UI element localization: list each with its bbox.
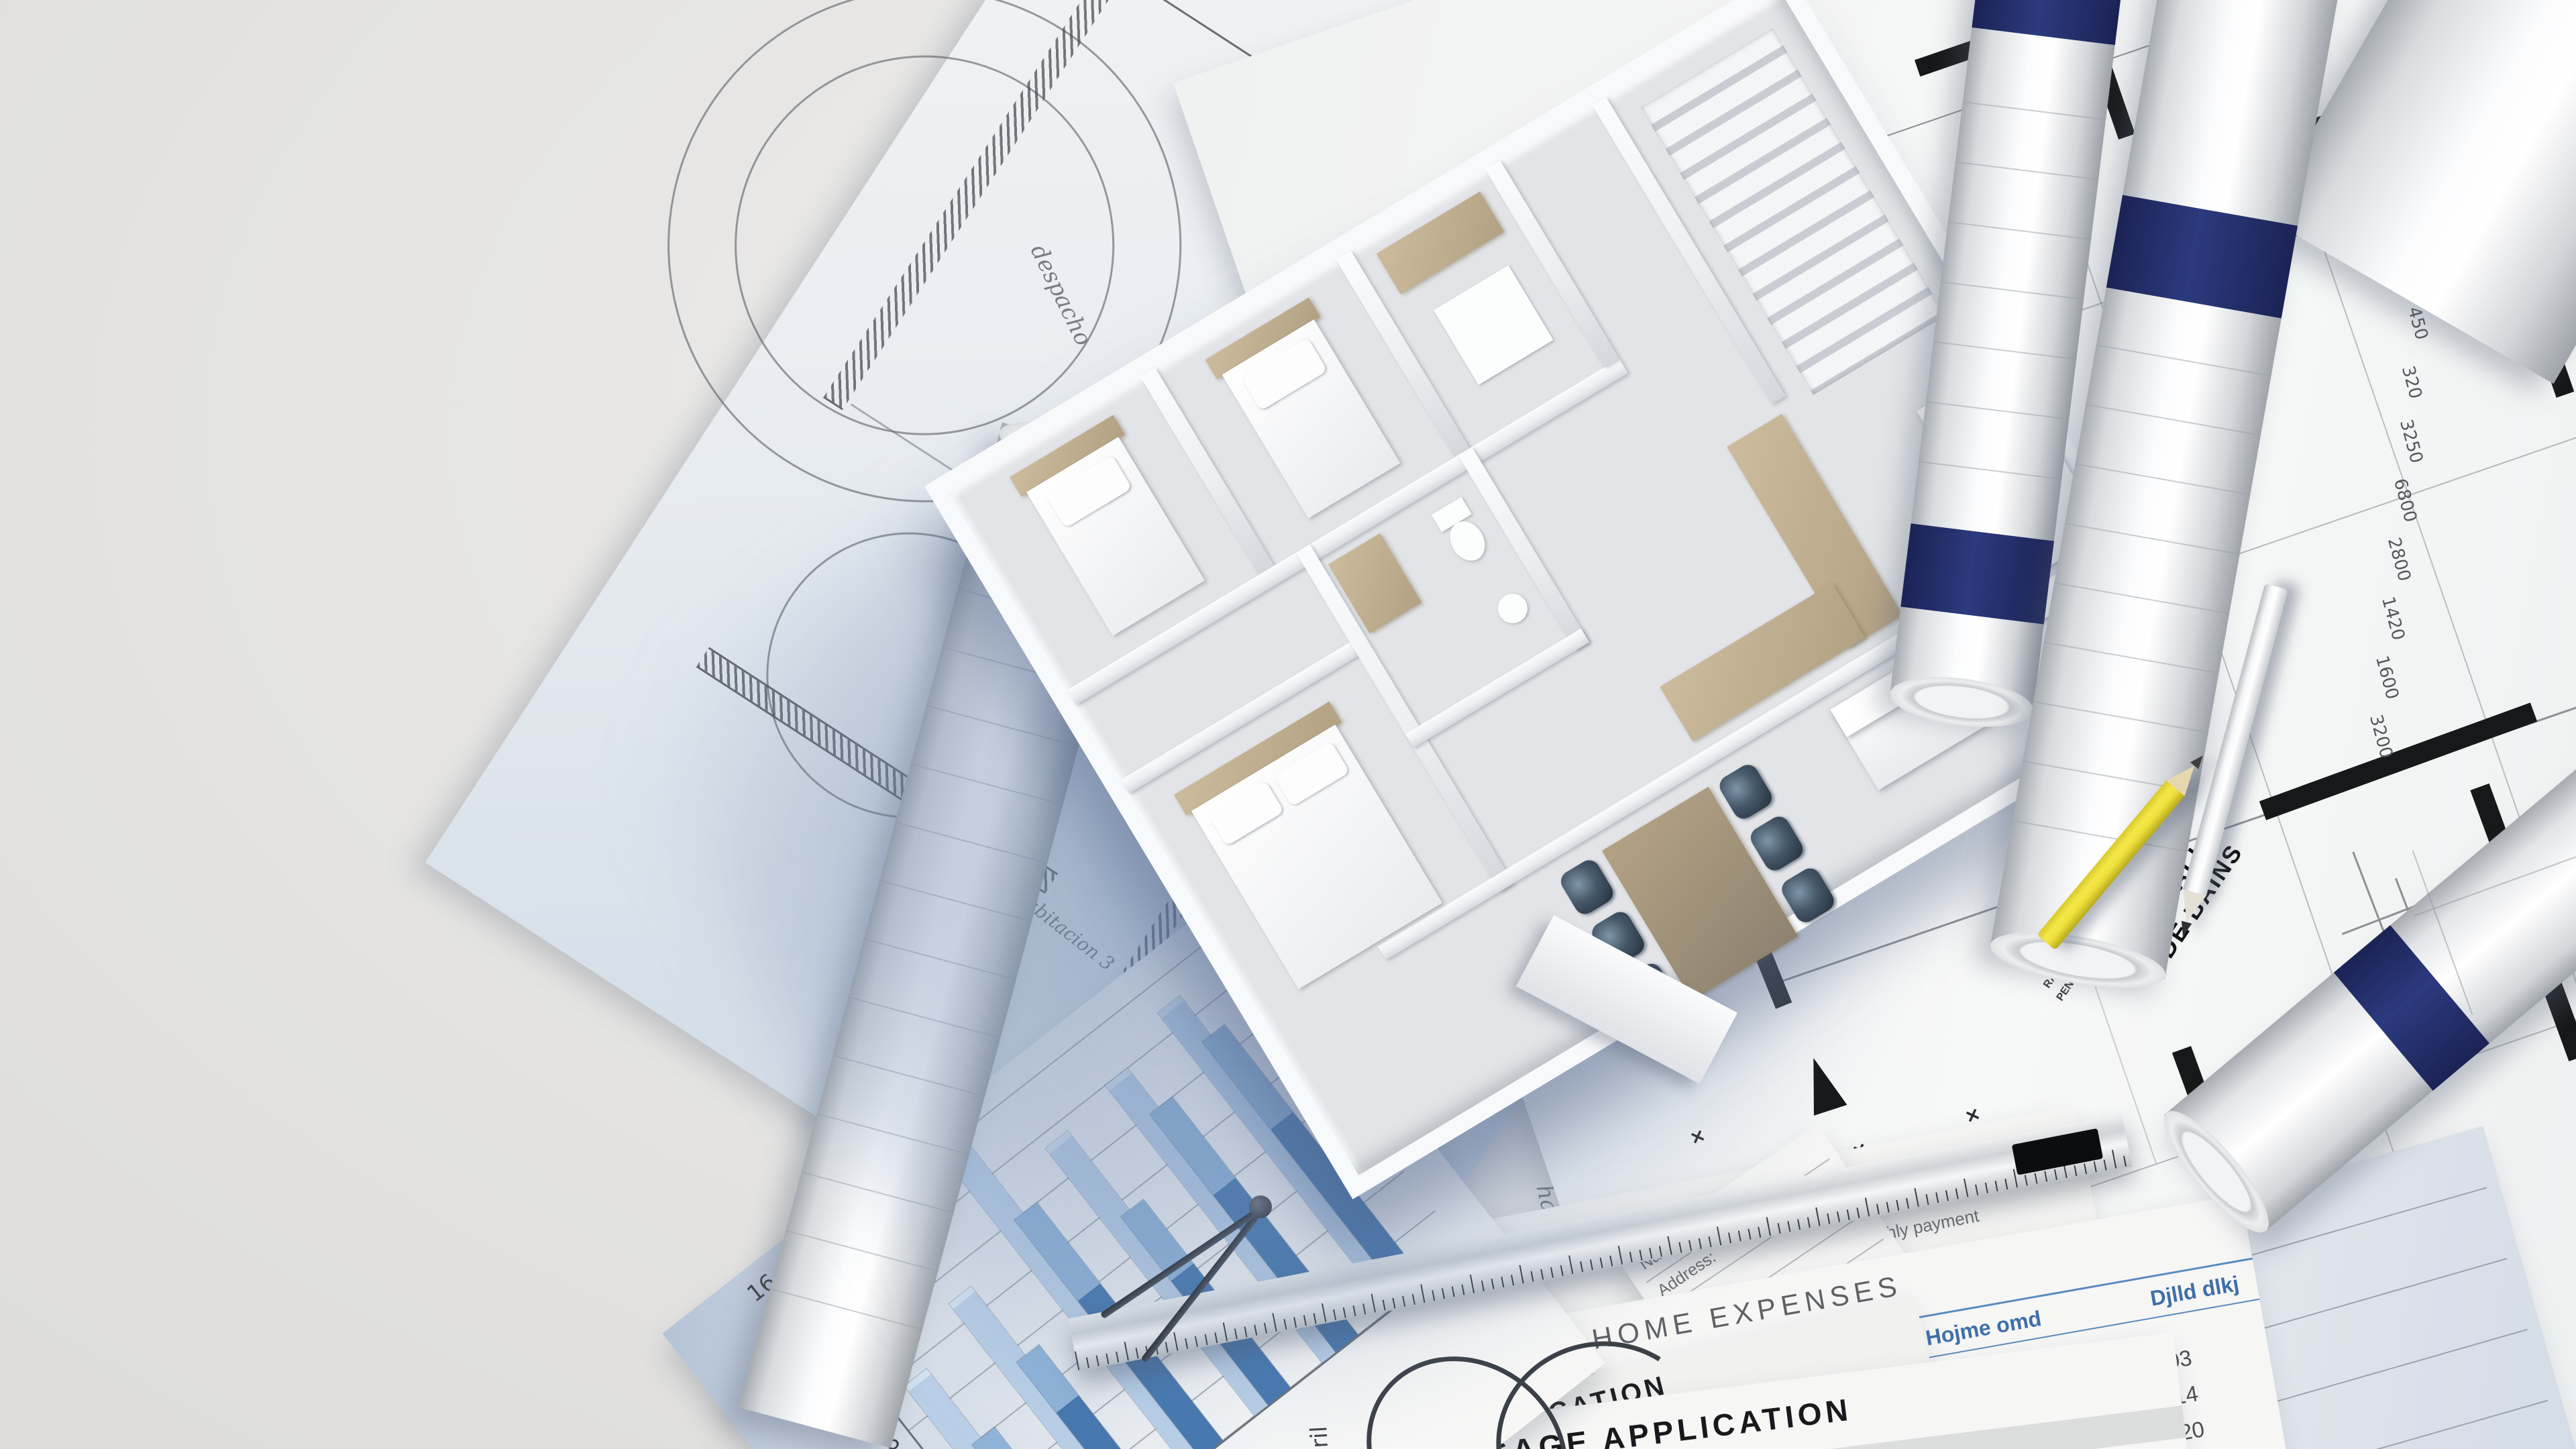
architectural-scene: despacho entrada habitacion 3 habitacion… [0, 0, 2576, 1449]
navy-band [2106, 195, 2298, 319]
dining-chair [1557, 856, 1617, 918]
dining-chair [1716, 761, 1776, 822]
pencil-graphite-tip [2178, 921, 2192, 938]
interior-wall [1405, 629, 1590, 748]
dining-chair [1747, 812, 1807, 874]
shower [1434, 265, 1553, 384]
sink [1493, 588, 1533, 629]
navy-band [1900, 523, 2054, 624]
navy-band [1972, 0, 2125, 45]
